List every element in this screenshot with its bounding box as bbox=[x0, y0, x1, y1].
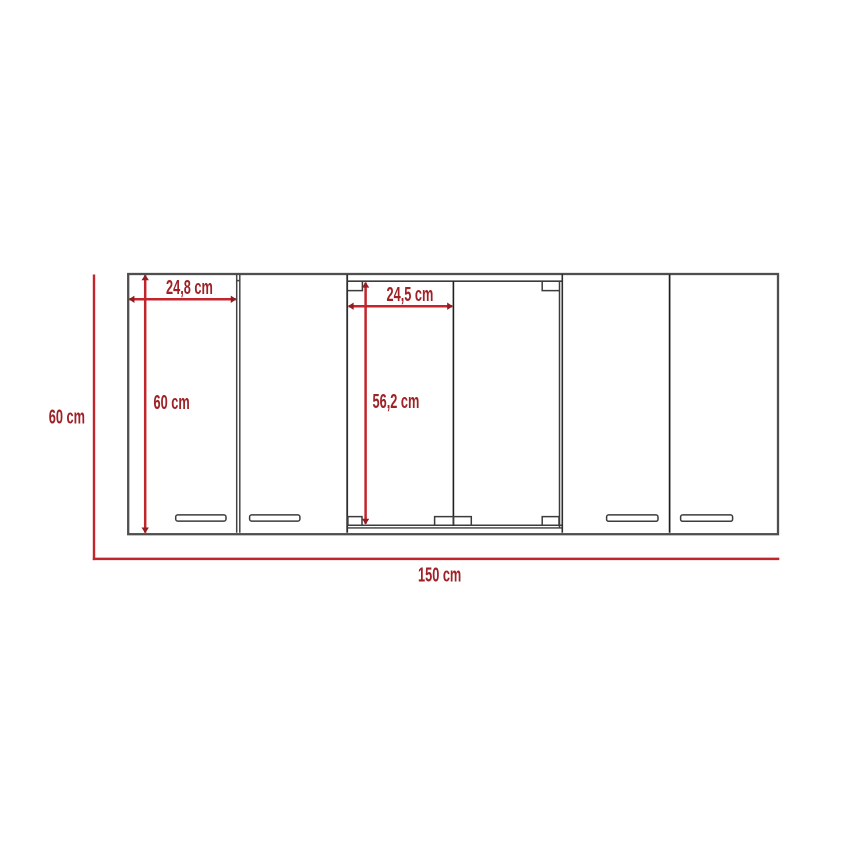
svg-text:60 cm: 60 cm bbox=[154, 390, 190, 414]
svg-text:56,2 cm: 56,2 cm bbox=[373, 389, 420, 413]
svg-text:60 cm: 60 cm bbox=[49, 404, 85, 428]
svg-text:24,5 cm: 24,5 cm bbox=[387, 282, 434, 306]
svg-text:150 cm: 150 cm bbox=[418, 562, 461, 586]
svg-text:24,8 cm: 24,8 cm bbox=[166, 275, 213, 299]
